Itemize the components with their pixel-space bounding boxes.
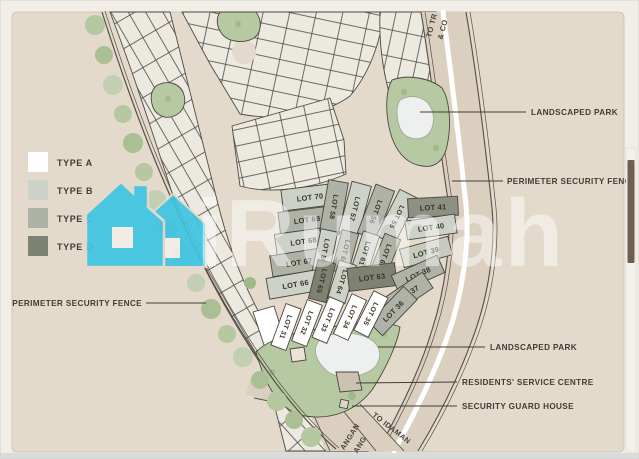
- legend-swatch-type-b: [28, 180, 48, 200]
- label-perimeter-fence-left: PERIMETER SECURITY FENCE: [12, 299, 142, 308]
- security-guard-house-building: [339, 399, 348, 408]
- watermark-text: iRumah: [196, 180, 566, 287]
- cul-de-sac: [232, 40, 256, 64]
- legend-swatch-type-d: [28, 236, 48, 256]
- watermark-house-left-window: [112, 227, 133, 248]
- scrollbar-thumb[interactable]: [628, 160, 635, 263]
- label-landscaped-park-bottom: LANDSCAPED PARK: [490, 343, 577, 352]
- legend-label-type-a: TYPE A: [57, 158, 93, 168]
- park-structure: [290, 347, 306, 362]
- site-plan-page: LOT 70 LOT 69 LOT 68 LOT 67 LOT 66 LOT 5…: [0, 0, 639, 459]
- pond-top: [397, 97, 433, 139]
- scrollbar[interactable]: [626, 148, 636, 452]
- site-plan-map: LOT 70 LOT 69 LOT 68 LOT 67 LOT 66 LOT 5…: [0, 0, 639, 459]
- label-security-guard-house: SECURITY GUARD HOUSE: [462, 402, 574, 411]
- legend-swatch-type-a: [28, 152, 48, 172]
- legend-label-type-b: TYPE B: [57, 186, 93, 196]
- residents-service-centre-building: [336, 372, 362, 392]
- label-residents-service-centre: RESIDENTS' SERVICE CENTRE: [462, 378, 594, 387]
- label-landscaped-park-top: LANDSCAPED PARK: [531, 108, 618, 117]
- legend-swatch-type-c: [28, 208, 48, 228]
- park-mid-small: [151, 83, 184, 118]
- frame-bottom-shadow: [0, 453, 639, 459]
